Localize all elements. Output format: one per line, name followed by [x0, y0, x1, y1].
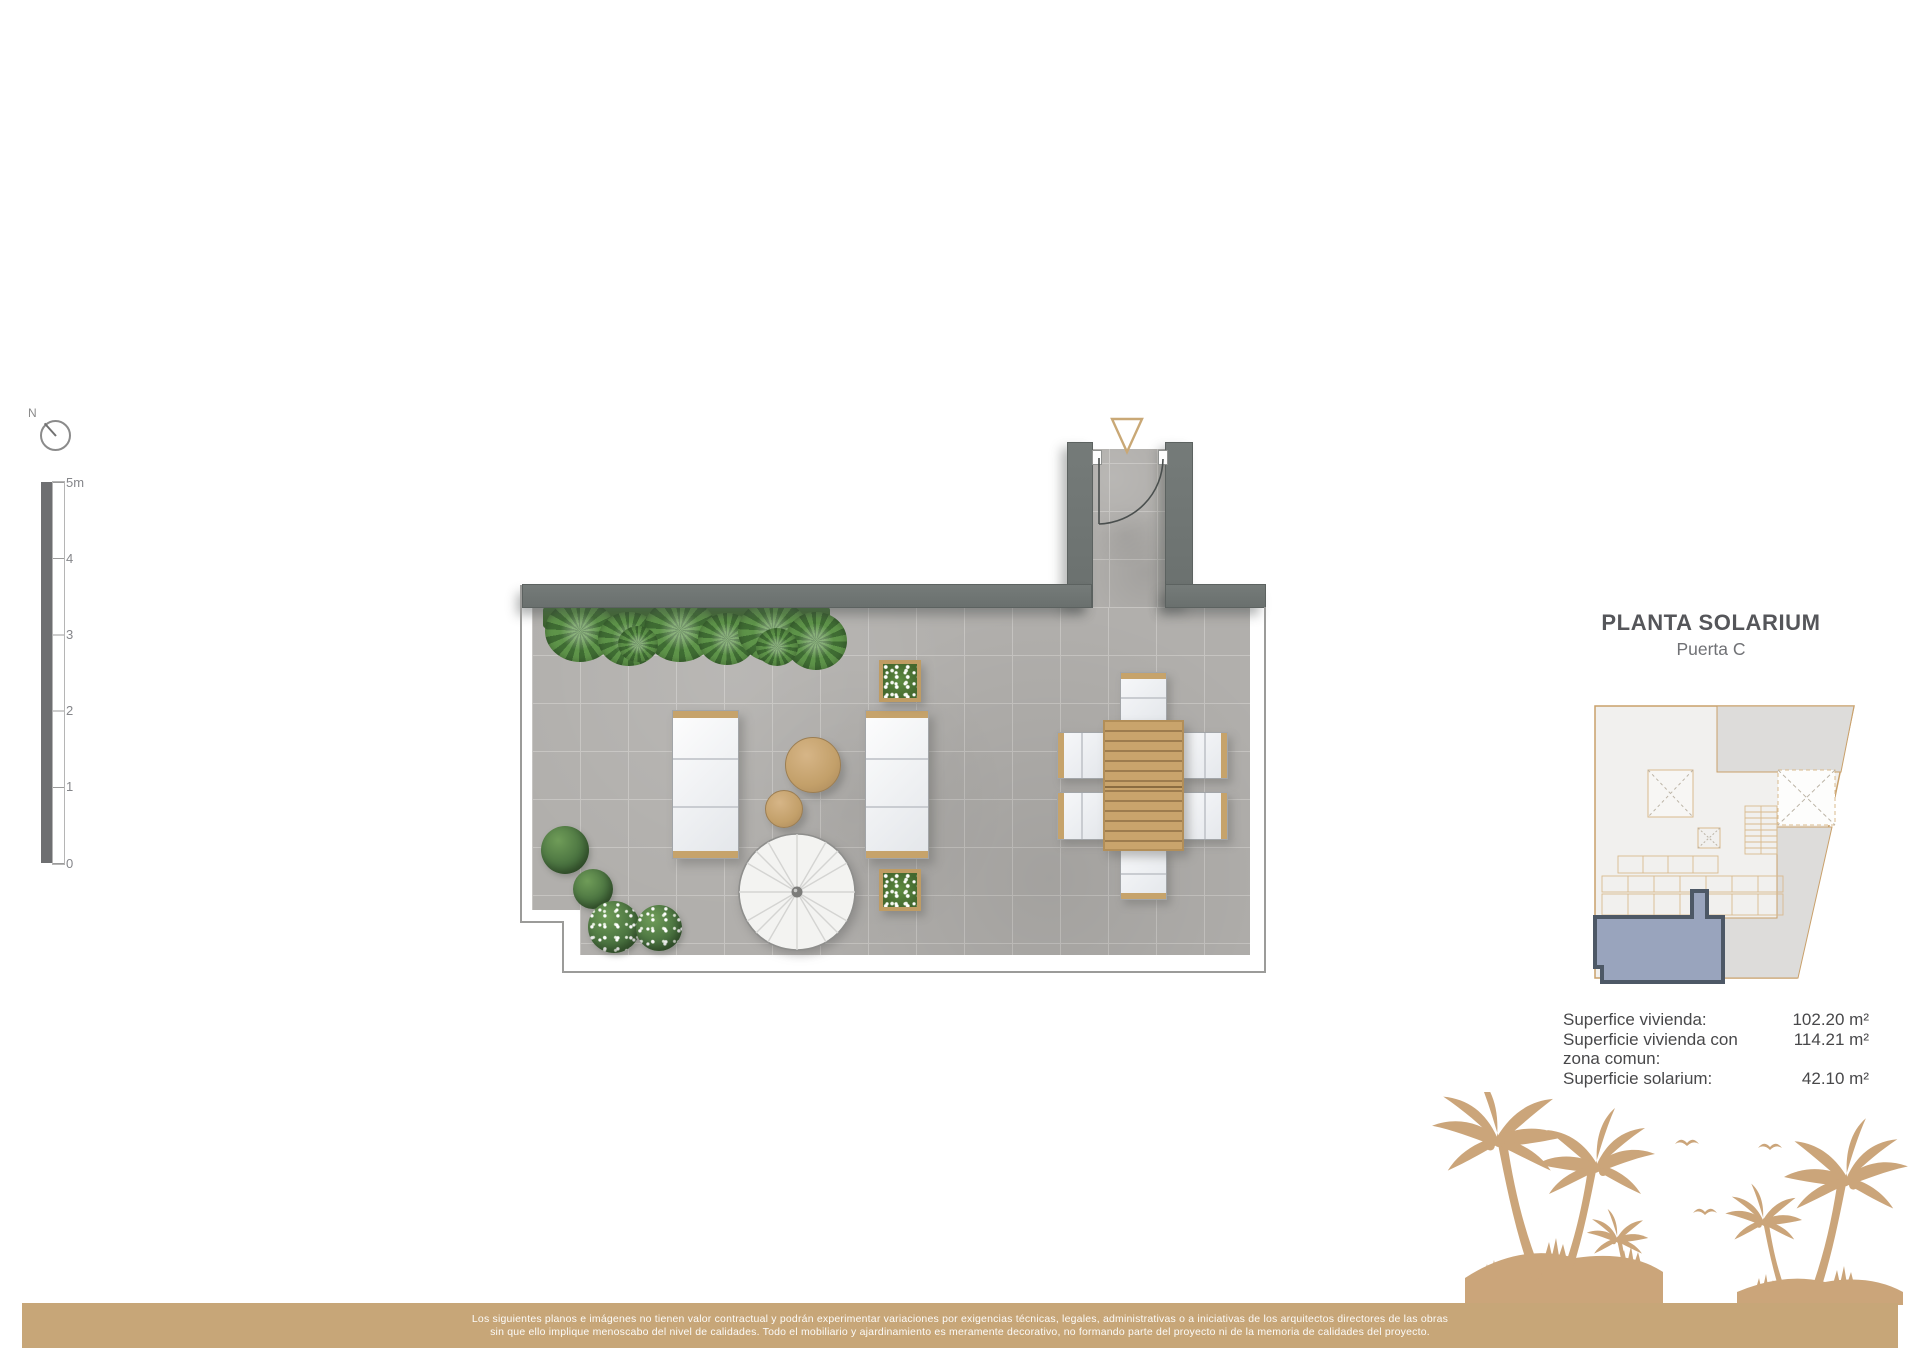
neighbor-block-top	[1717, 706, 1854, 772]
area-value: 42.10 m²	[1769, 1069, 1869, 1089]
area-label: Superficie vivienda con zona comun:	[1563, 1030, 1769, 1069]
parapet-outline	[521, 585, 1265, 972]
area-label: Superfice vivienda:	[1563, 1010, 1769, 1030]
disclaimer-bar: Los siguientes planos e imágenes no tien…	[22, 1303, 1898, 1348]
bird-icon	[1693, 1209, 1717, 1215]
bird-icon	[1675, 1140, 1699, 1146]
bird-icon	[1758, 1144, 1782, 1150]
area-label: Superficie solarium:	[1563, 1069, 1769, 1089]
palm-trees-graphic	[1425, 1092, 1910, 1305]
disclaimer-line-2: sin que ello implique menoscabo del nive…	[22, 1326, 1898, 1339]
page-title: PLANTA SOLARIUM	[1560, 610, 1862, 636]
floor-plan-sheet: N 5m 4 3 2 1 0	[0, 0, 1920, 1370]
page-subtitle: Puerta C	[1560, 639, 1862, 660]
door-swing-arc	[1099, 458, 1163, 524]
area-row: Superficie vivienda con zona comun: 114.…	[1563, 1030, 1869, 1069]
disclaimer-line-1: Los siguientes planos e imágenes no tien…	[22, 1313, 1898, 1326]
building-minimap	[1590, 698, 1865, 990]
shaft-left	[1648, 770, 1693, 817]
area-row: Superficie solarium: 42.10 m²	[1563, 1069, 1869, 1089]
shaft-right	[1778, 770, 1835, 825]
area-value: 102.20 m²	[1769, 1010, 1869, 1030]
area-row: Superfice vivienda: 102.20 m²	[1563, 1010, 1869, 1030]
area-value: 114.21 m²	[1769, 1030, 1869, 1069]
entrance-arrow-icon	[1112, 419, 1142, 452]
surface-areas: Superfice vivienda: 102.20 m² Superficie…	[1563, 1010, 1869, 1088]
